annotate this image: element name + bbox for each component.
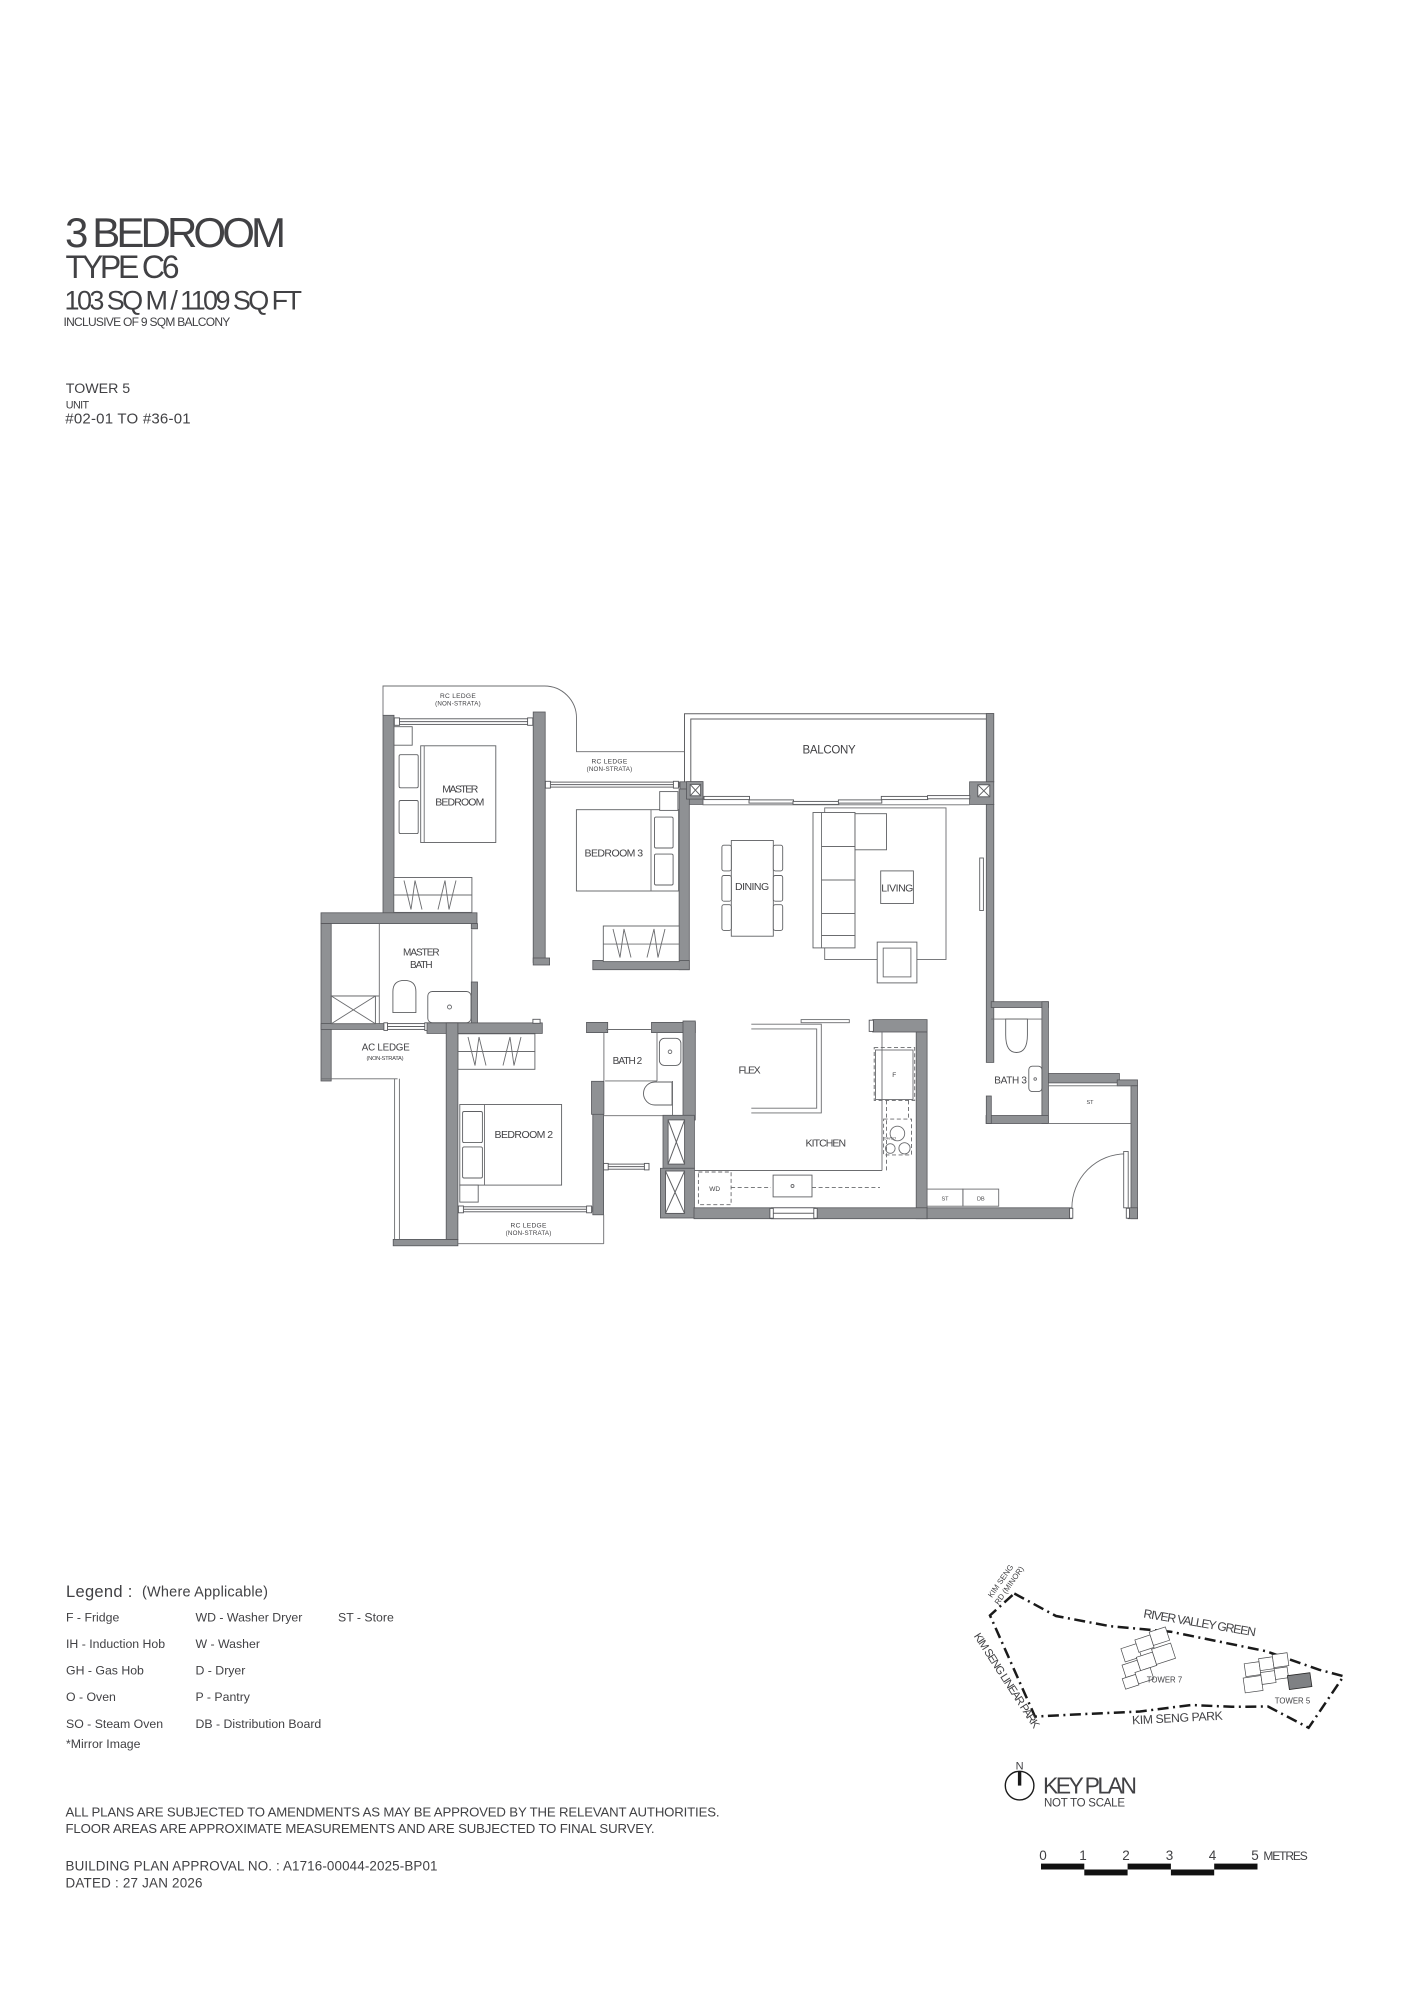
svg-text:BEDROOM 2: BEDROOM 2 [495,1129,554,1141]
svg-text:MASTER: MASTER [403,947,440,958]
svg-text:RC LEDGE: RC LEDGE [511,1223,547,1230]
svg-text:*Mirror Image: *Mirror Image [66,1737,141,1751]
svg-text:Legend :: Legend : [66,1583,133,1601]
svg-text:BALCONY: BALCONY [803,744,857,756]
svg-text:(Where Applicable): (Where Applicable) [142,1585,268,1601]
svg-text:TOWER 5: TOWER 5 [66,381,130,397]
svg-text:BATH: BATH [410,960,433,971]
svg-text:(NON-STRATA): (NON-STRATA) [587,766,633,773]
svg-text:(NON-STRATA): (NON-STRATA) [367,1056,404,1062]
svg-text:ALL PLANS ARE SUBJECTED TO AME: ALL PLANS ARE SUBJECTED TO AMENDMENTS AS… [66,1805,720,1820]
svg-text:LIVING: LIVING [881,883,914,895]
svg-text:4: 4 [1209,1848,1217,1863]
svg-text:ST: ST [941,1197,949,1203]
svg-text:RC LEDGE: RC LEDGE [440,693,476,700]
svg-text:GH/SO: GH/SO [884,1137,896,1141]
svg-text:KIM SENG LINEAR PARK: KIM SENG LINEAR PARK [971,1631,1042,1731]
svg-text:F: F [892,1072,896,1079]
svg-text:FLOOR AREAS ARE APPROXIMATE ME: FLOOR AREAS ARE APPROXIMATE MEASUREMENTS… [66,1821,655,1836]
svg-text:D - Dryer: D - Dryer [196,1664,246,1678]
svg-text:DB - Distribution Board: DB - Distribution Board [196,1717,322,1731]
svg-text:TOWER 5: TOWER 5 [1275,1697,1311,1706]
svg-text:BATH 3: BATH 3 [994,1075,1027,1086]
svg-text:W - Washer: W - Washer [196,1637,260,1651]
svg-text:AC LEDGE: AC LEDGE [362,1043,411,1054]
svg-text:KEY PLAN: KEY PLAN [1043,1773,1137,1799]
svg-text:DB: DB [977,1197,985,1203]
svg-text:BEDROOM: BEDROOM [435,797,485,809]
svg-text:MASTER: MASTER [442,784,479,796]
svg-text:ST - Store: ST - Store [338,1611,394,1625]
svg-text:P - Pantry: P - Pantry [196,1690,251,1704]
svg-text:RC LEDGE: RC LEDGE [591,759,627,766]
svg-text:TYPE C6: TYPE C6 [66,249,180,285]
svg-text:WD: WD [709,1186,720,1193]
svg-text:3: 3 [1166,1848,1174,1863]
svg-text:TOWER 7: TOWER 7 [1147,1676,1182,1685]
svg-text:SO - Steam Oven: SO - Steam Oven [66,1717,163,1731]
svg-text:O - Oven: O - Oven [66,1690,116,1704]
svg-text:1: 1 [1079,1848,1087,1863]
svg-text:BATH 2: BATH 2 [613,1056,643,1067]
svg-text:DINING: DINING [735,881,770,893]
svg-text:DATED : 27 JAN 2026: DATED : 27 JAN 2026 [66,1876,203,1891]
svg-text:F - Fridge: F - Fridge [66,1611,119,1625]
svg-text:#02-01 TO #36-01: #02-01 TO #36-01 [65,411,190,428]
svg-text:NOT TO SCALE: NOT TO SCALE [1044,1798,1125,1810]
svg-text:0: 0 [1039,1848,1047,1863]
svg-text:BEDROOM 3: BEDROOM 3 [585,847,644,859]
svg-text:(NON-STRATA): (NON-STRATA) [435,701,481,708]
svg-text:N: N [1016,1761,1024,1773]
svg-text:2: 2 [1122,1848,1130,1863]
svg-text:ST: ST [1086,1100,1094,1106]
svg-text:GH - Gas Hob: GH - Gas Hob [66,1664,144,1678]
svg-text:5: 5 [1251,1848,1259,1863]
svg-text:BUILDING PLAN APPROVAL NO. : A: BUILDING PLAN APPROVAL NO. : A1716-00044… [66,1859,438,1874]
svg-text:103 SQ M / 1109 SQ FT: 103 SQ M / 1109 SQ FT [65,286,303,316]
svg-text:FLEX: FLEX [739,1065,762,1077]
svg-text:METRES: METRES [1263,1849,1307,1863]
svg-text:KITCHEN: KITCHEN [806,1138,847,1150]
svg-text:(NON-STRATA): (NON-STRATA) [506,1230,552,1237]
svg-text:WD - Washer Dryer: WD - Washer Dryer [196,1611,303,1625]
svg-text:INCLUSIVE OF 9 SQM BALCONY: INCLUSIVE OF 9 SQM BALCONY [64,315,231,329]
svg-text:IH - Induction Hob: IH - Induction Hob [66,1637,165,1651]
